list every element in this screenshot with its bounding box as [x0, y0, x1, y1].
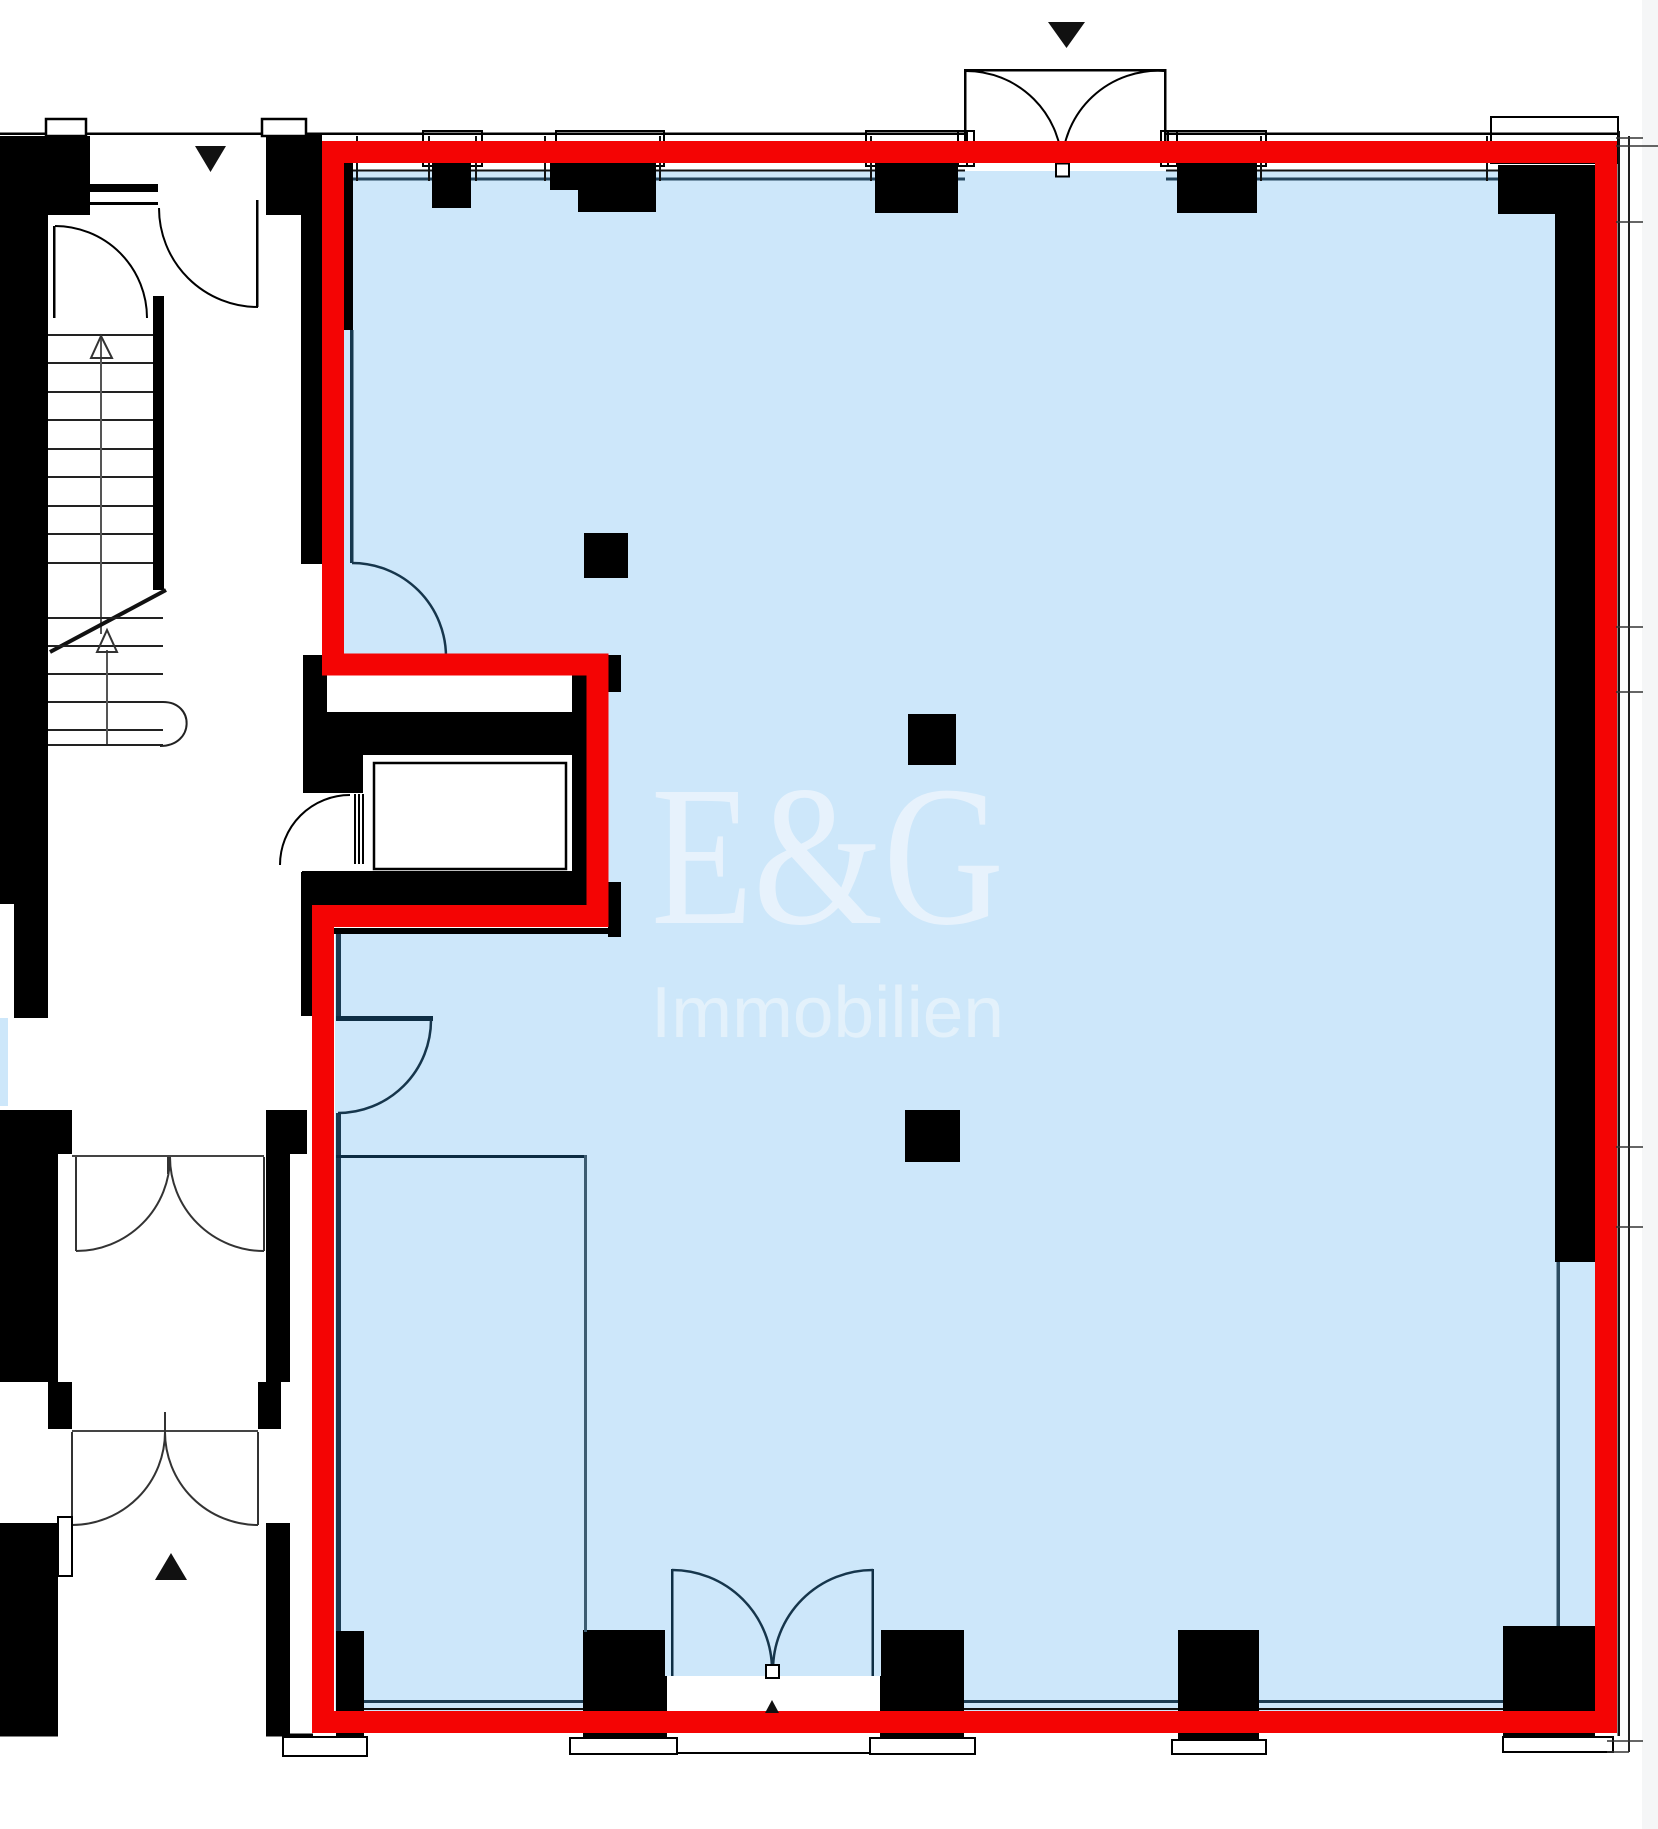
svg-text:Immobilien: Immobilien — [651, 973, 1004, 1053]
svg-text:E&G: E&G — [651, 746, 1004, 967]
